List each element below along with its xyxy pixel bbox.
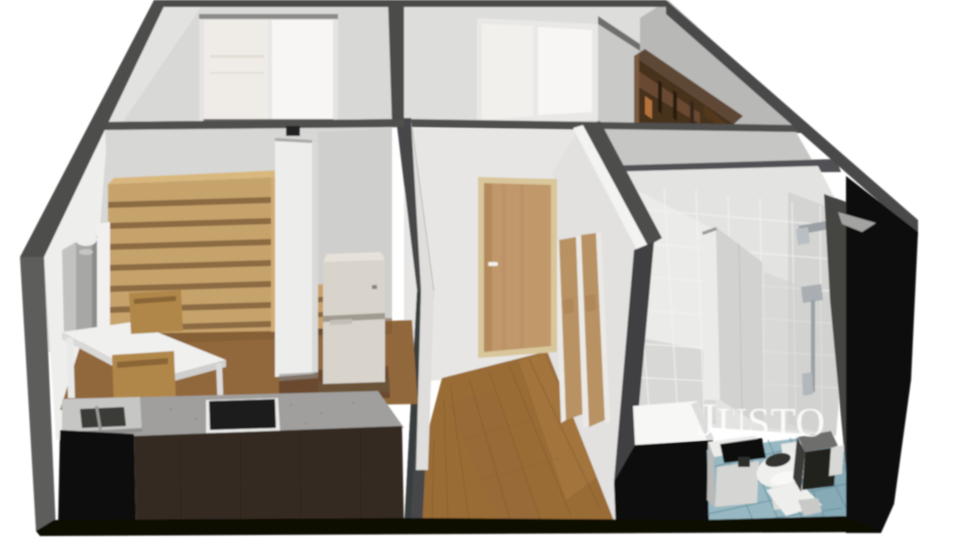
svg-text:JUSTO: JUSTO [698,394,826,447]
